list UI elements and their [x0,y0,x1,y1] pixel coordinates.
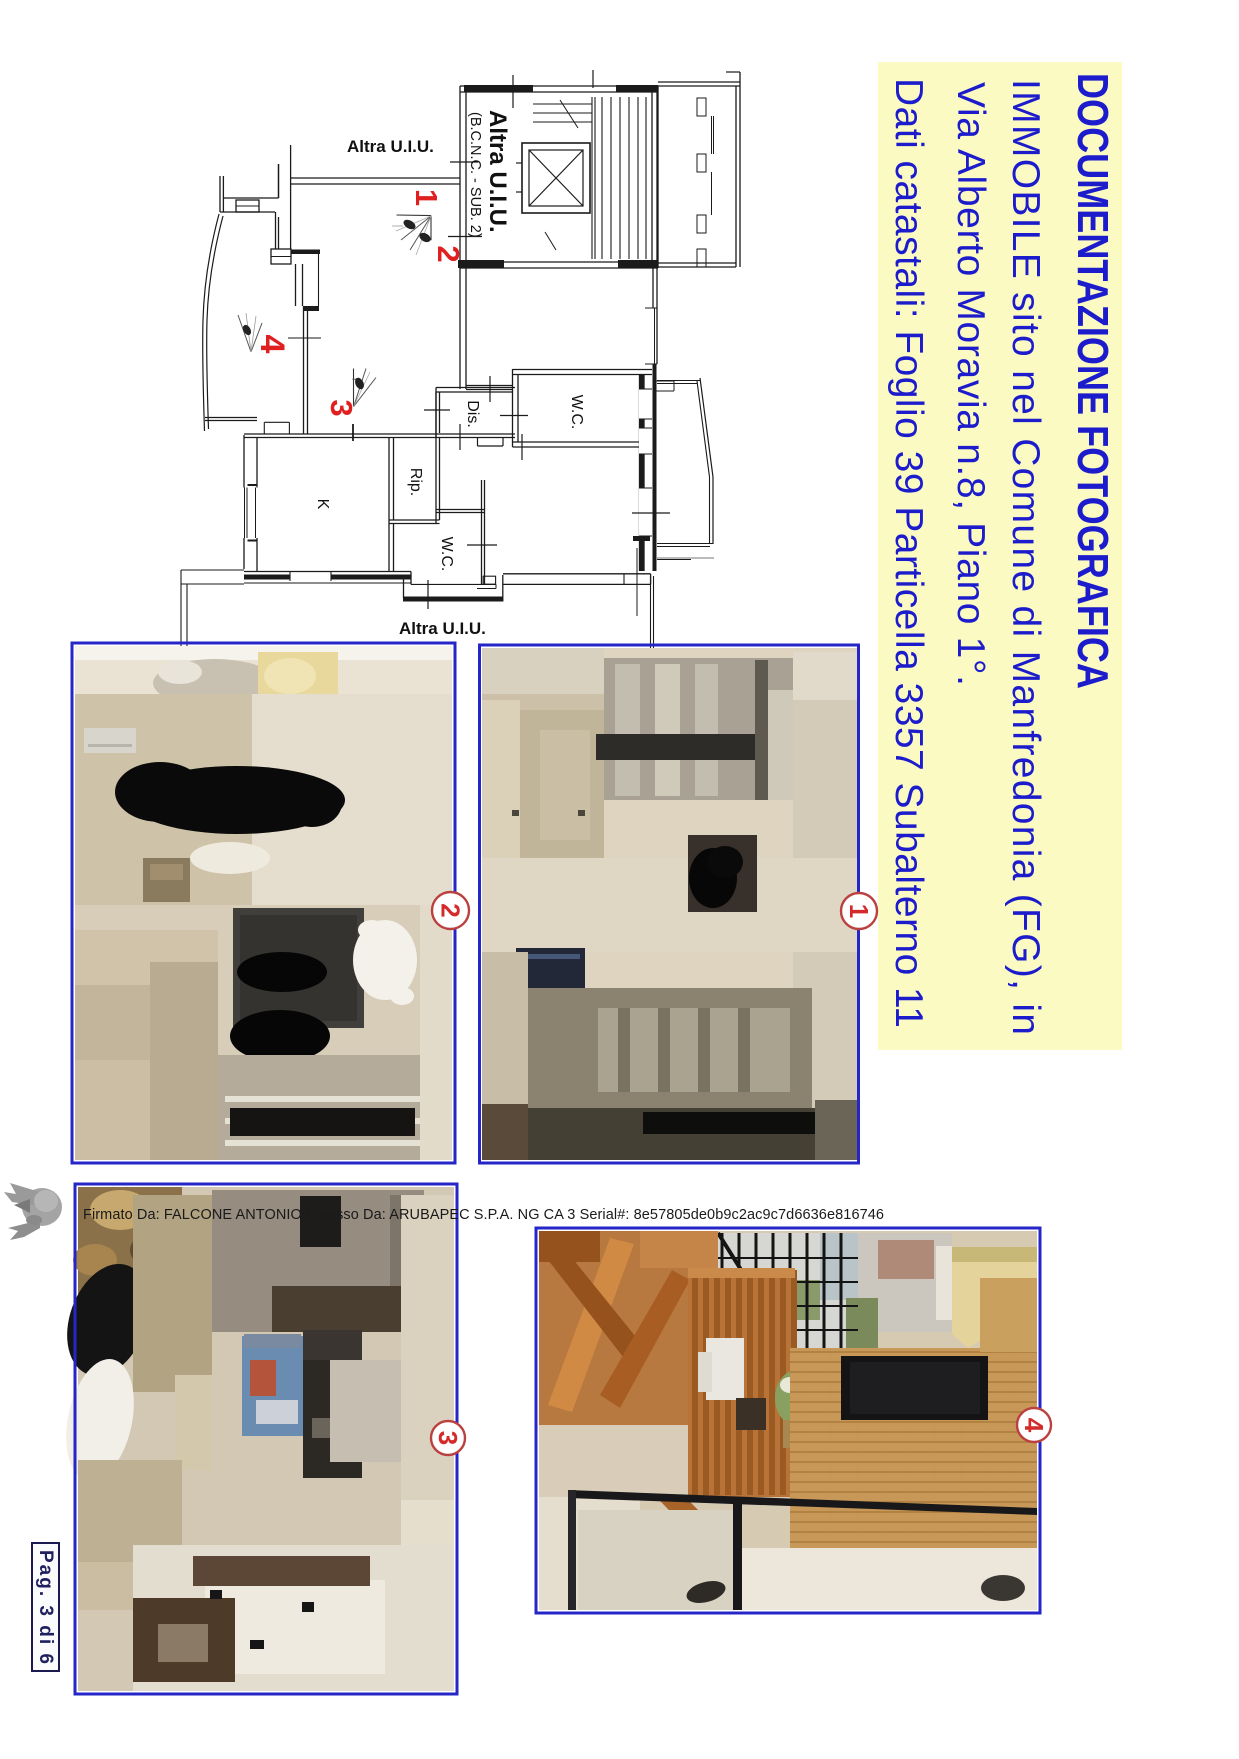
svg-text:1: 1 [844,904,874,918]
svg-text:Rip.: Rip. [407,468,424,496]
svg-text:2: 2 [431,245,466,262]
svg-text:4: 4 [253,335,291,354]
svg-text:Via Alberto Moravia n.8, Piano: Via Alberto Moravia n.8, Piano 1°. [949,82,992,686]
svg-text:IMMOBILE sito nel Comune di Ma: IMMOBILE sito nel Comune di Manfredonia … [1004,79,1047,1035]
svg-text:K: K [314,499,331,510]
svg-text:Pag. 3 di 6: Pag. 3 di 6 [35,1550,56,1664]
svg-text:1: 1 [409,189,444,206]
svg-text:Altra U.I.U.: Altra U.I.U. [347,137,434,156]
svg-text:2: 2 [436,903,466,917]
svg-text:Firmato Da: FALCONE ANTONIO Em: Firmato Da: FALCONE ANTONIO Emesso Da: A… [83,1207,884,1223]
svg-text:W.C.: W.C. [438,537,455,572]
svg-text:DOCUMENTAZIONE FOTOGRAFICA: DOCUMENTAZIONE FOTOGRAFICA [1068,73,1117,689]
svg-text:Dati catastali: Foglio 39 Part: Dati catastali: Foglio 39 Particella 335… [887,78,930,1028]
svg-text:Altra U.I.U.: Altra U.I.U. [484,110,511,233]
svg-text:W.C.: W.C. [568,395,585,430]
svg-text:(B.C.N.C. - SUB. 2): (B.C.N.C. - SUB. 2) [467,112,483,238]
svg-text:3: 3 [324,399,359,416]
svg-text:Dis.: Dis. [464,400,481,428]
svg-text:3: 3 [433,1431,463,1445]
svg-text:4: 4 [1019,1418,1049,1433]
svg-text:Altra U.I.U.: Altra U.I.U. [399,619,486,638]
